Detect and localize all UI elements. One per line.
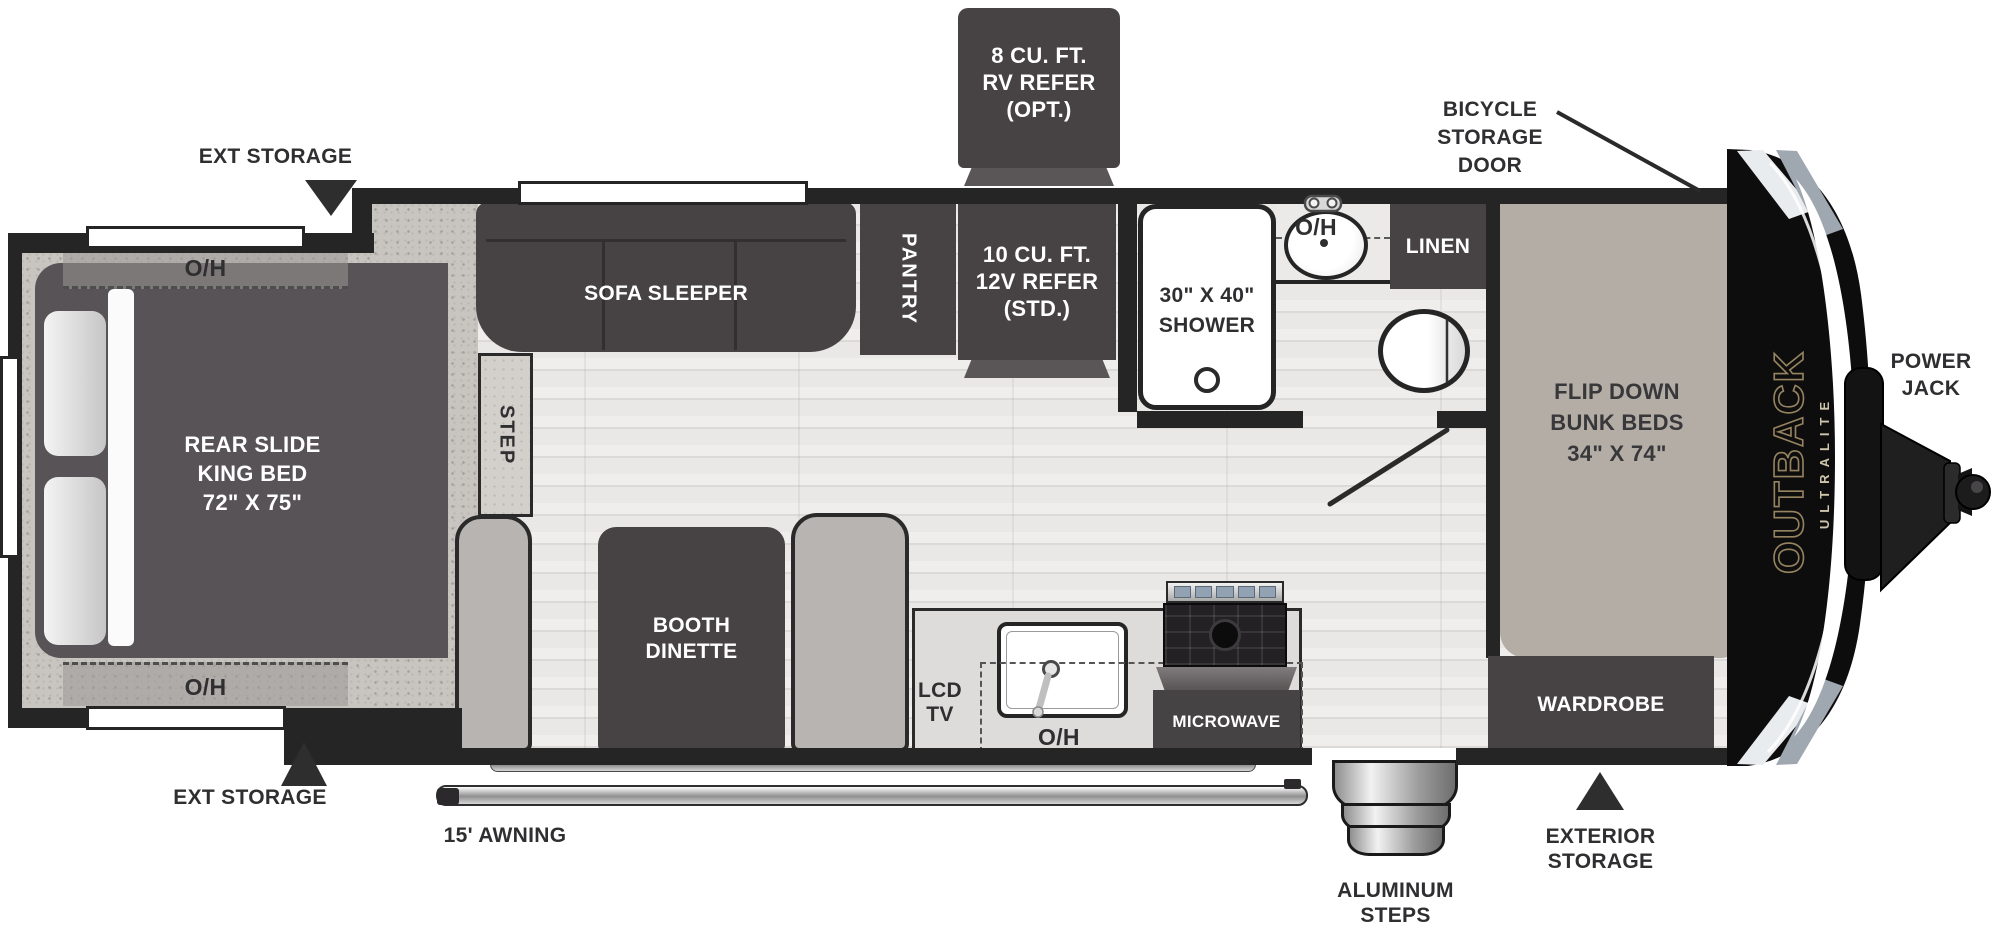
ext-storage-bottom-label: EXT STORAGE — [160, 786, 340, 811]
exterior-storage-front-arrow — [1576, 772, 1624, 810]
ext-storage-top-arrow — [305, 180, 357, 216]
brand-sub-logo: ULTRALITE — [1817, 312, 1837, 612]
bath-sink-drain — [1320, 239, 1328, 247]
bicycle-label-line: BICYCLE — [1420, 96, 1560, 124]
steps-label-line: STEPS — [1318, 903, 1473, 928]
steps-label-line: ALUMINUM — [1318, 878, 1473, 903]
power-jack-line: JACK — [1876, 375, 1986, 402]
bathroom-door-swing — [1330, 430, 1447, 504]
front-storage-line: EXTERIOR — [1528, 824, 1673, 849]
floorplan-diagram: REAR SLIDE KING BED 72" X 75" O/H O/H ST… — [0, 0, 2000, 931]
bath-faucet-icon — [1305, 196, 1341, 211]
bicycle-door-pointer-line — [1557, 112, 1700, 191]
aluminum-steps-label: ALUMINUM STEPS — [1318, 878, 1473, 928]
bicycle-label-line: DOOR — [1420, 152, 1560, 180]
bicycle-label-line: STORAGE — [1420, 124, 1560, 152]
power-jack-line: POWER — [1876, 348, 1986, 375]
exterior-storage-front-label: EXTERIOR STORAGE — [1528, 824, 1673, 874]
awning-label: 15' AWNING — [420, 824, 590, 849]
power-jack-label: POWER JACK — [1876, 348, 1986, 402]
front-storage-line: STORAGE — [1528, 849, 1673, 874]
ext-storage-bottom-arrow — [281, 742, 327, 786]
bicycle-storage-door-label: BICYCLE STORAGE DOOR — [1420, 96, 1560, 180]
kitchen-faucet-icon — [1033, 662, 1059, 718]
brand-logo: OUTBACK — [1765, 297, 1813, 627]
ext-storage-top-label: EXT STORAGE — [178, 145, 373, 170]
